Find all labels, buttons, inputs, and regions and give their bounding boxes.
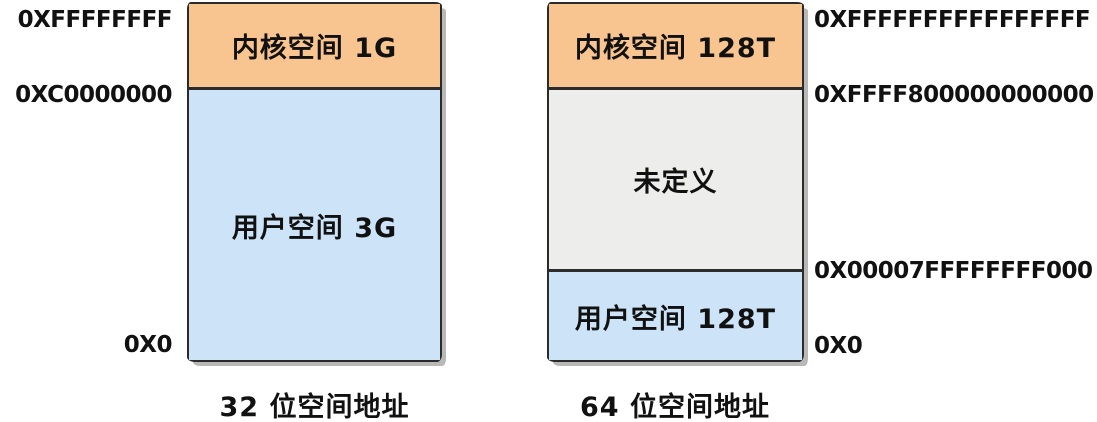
segment-kernel-space-64bit: 内核空间 128T bbox=[549, 4, 802, 90]
segment-label-user-32bit: 用户空间 3G bbox=[232, 206, 397, 245]
segment-undefined-64bit: 未定义 bbox=[549, 90, 802, 272]
caption-64bit: 64 位空间地址 bbox=[540, 385, 810, 422]
segment-kernel-space-32bit: 内核空间 1G bbox=[189, 4, 440, 90]
address-label-64bit-user-top: 0X00007FFFFFFFF000 bbox=[814, 257, 1097, 285]
address-space-stack-64bit: 内核空间 128T 未定义 用户空间 128T bbox=[547, 2, 804, 362]
segment-label-kernel-64bit: 内核空间 128T bbox=[575, 26, 776, 65]
address-space-stack-32bit: 内核空间 1G 用户空间 3G bbox=[187, 2, 442, 362]
segment-user-space-32bit: 用户空间 3G bbox=[189, 90, 440, 360]
address-label-64bit-bottom: 0X0 bbox=[814, 332, 1097, 360]
segment-label-kernel-32bit: 内核空间 1G bbox=[232, 26, 397, 65]
memory-address-space-diagram: 内核空间 1G 用户空间 3G 0XFFFFFFFF 0XC0000000 0X… bbox=[0, 0, 1097, 422]
address-label-64bit-kernel-base: 0XFFFF800000000000 bbox=[814, 81, 1097, 109]
address-label-32bit-top: 0XFFFFFFFF bbox=[2, 6, 172, 34]
address-label-32bit-kernel-base: 0XC0000000 bbox=[2, 81, 172, 109]
address-label-32bit-bottom: 0X0 bbox=[2, 331, 172, 359]
caption-32bit: 32 位空间地址 bbox=[187, 385, 442, 422]
segment-label-undefined-64bit: 未定义 bbox=[634, 160, 718, 199]
segment-label-user-64bit: 用户空间 128T bbox=[575, 297, 776, 336]
address-label-64bit-top: 0XFFFFFFFFFFFFFFFF bbox=[814, 6, 1097, 34]
segment-user-space-64bit: 用户空间 128T bbox=[549, 272, 802, 360]
